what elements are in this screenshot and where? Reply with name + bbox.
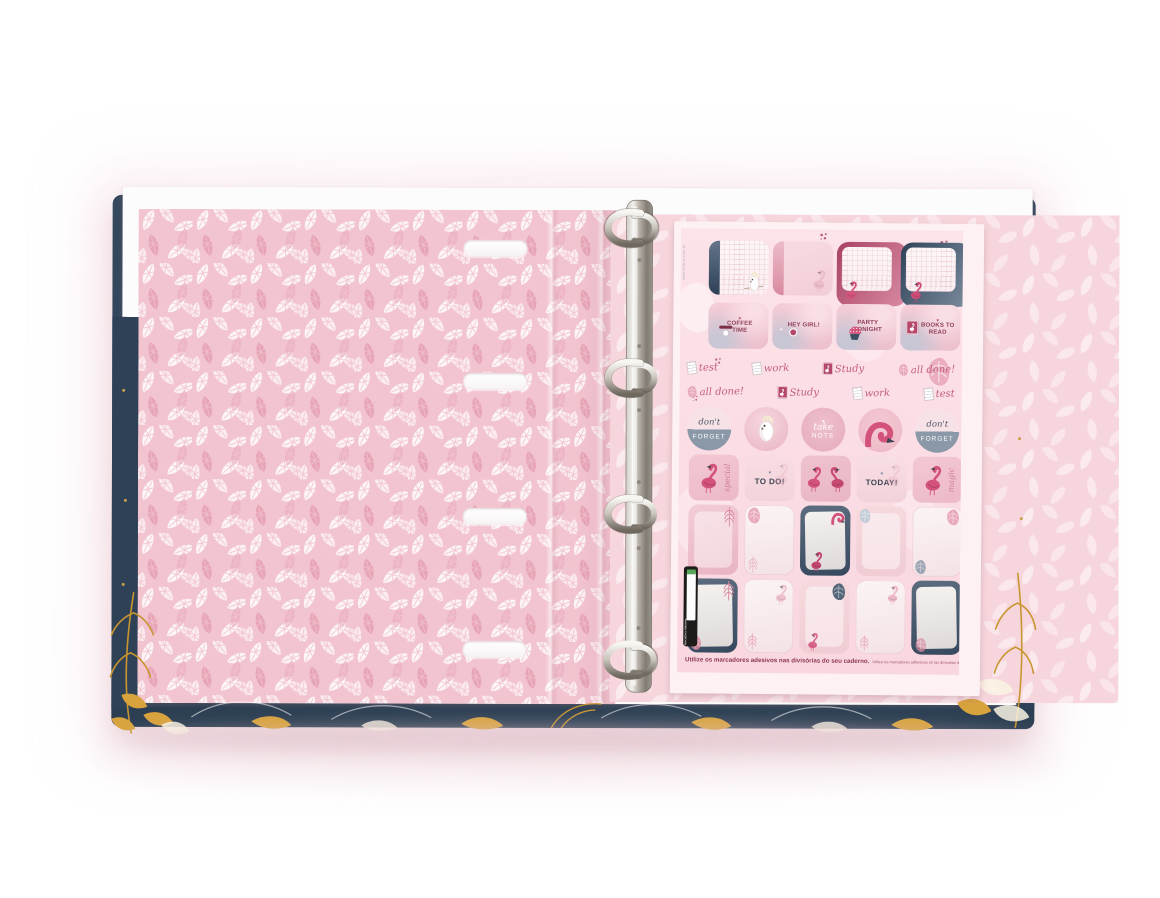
sticker-round-cockatoo — [744, 407, 788, 451]
book-flamingo-icon — [777, 386, 787, 398]
fern-leaf-decor — [747, 556, 759, 573]
elastic-slot-1 — [464, 240, 528, 257]
sticker-card-rose-frame — [836, 242, 907, 307]
sticker-square-today: ♥ TODAY! — [857, 456, 907, 502]
sticker-badge-books-to-read: ♥BOOKS TO READ — [900, 304, 960, 351]
product-photo: www.tilibra.com.br — [0, 0, 1160, 898]
script-word: work — [763, 362, 789, 374]
sticker-badge-hey-girl: HEY GIRL! — [772, 303, 832, 350]
gold-dot — [122, 389, 125, 392]
flamingo-icon — [808, 550, 826, 572]
badge-label: BOOKS TO READ — [921, 323, 955, 338]
gold-dot — [124, 499, 127, 502]
flamingo-head-icon — [863, 413, 897, 447]
sticker-card-pink-bar — [773, 241, 834, 296]
sticker-card-navy-bar — [709, 241, 770, 296]
script-word: work — [864, 387, 890, 399]
spine-crease-1 — [545, 210, 559, 704]
notepad-icon — [751, 361, 763, 375]
binder-soft-reflection — [95, 736, 1065, 780]
notepad-icon — [852, 386, 864, 400]
side-label-line1: Marcadores Adesivos — [684, 619, 687, 646]
monstera-leaf-decor — [914, 638, 927, 653]
flamingo-icon — [883, 462, 905, 490]
forget-caps: FORGET — [921, 435, 954, 442]
sticker-card-navy-frame — [900, 242, 963, 307]
sticker-round-take-note: ♥ take NOTE — [801, 407, 845, 451]
card-navy-bar — [709, 241, 721, 295]
sticker-square-special: special — [689, 454, 739, 500]
sticker-round-dont-forget: don't FORGET — [915, 409, 959, 453]
sheet-footer: Utilize os marcadores adesivos nas divis… — [685, 656, 956, 666]
dont-script: don't — [698, 417, 720, 427]
script-word: test — [699, 362, 718, 373]
tag-sticker — [912, 506, 963, 576]
gold-dot — [1020, 517, 1023, 520]
sticker-round-dont-forget: don't FORGET — [687, 406, 731, 450]
flamingo-icon — [908, 280, 926, 302]
sticker-square-magic: magic — [913, 456, 963, 502]
elastic-slot-3 — [463, 508, 527, 525]
flamingo-icon — [920, 464, 946, 496]
sticker-sheet-background: www.tilibra.com.br — [677, 228, 963, 675]
tag-sticker — [743, 579, 794, 653]
fern-leaf-decor — [746, 633, 758, 650]
flamingo-head-icon — [830, 509, 846, 525]
monstera-leaf-decor — [858, 508, 871, 524]
fern-leaf-decor — [858, 635, 870, 651]
magic-script: magic — [946, 468, 955, 493]
fern-leaf-decor — [722, 581, 736, 601]
footer-instruction-es: Utiliza los marcadores adhesivos en las … — [872, 660, 963, 665]
footer-instruction-pt: Utilize os marcadores adesivos nas divis… — [685, 656, 869, 665]
notepad-icon — [923, 387, 935, 401]
tag-sticker — [688, 504, 739, 574]
tag-sticker — [855, 580, 906, 654]
script-word: all done! — [910, 364, 955, 376]
tag-sticker — [799, 579, 850, 653]
product-side-label: Marcadores Adesivos — [683, 566, 698, 646]
monstera-leaf-decor — [746, 507, 761, 524]
take-script: take — [813, 424, 833, 433]
notepad-icon — [686, 360, 698, 374]
fern-leaf-decor — [722, 507, 736, 527]
open-ring-binder: www.tilibra.com.br — [111, 185, 1035, 731]
monstera-leaf-decor — [914, 560, 927, 575]
tag-sticker — [744, 505, 795, 575]
side-label-text: Marcadores Adesivos — [684, 616, 696, 645]
book-flamingo-icon — [906, 320, 918, 334]
gold-dot — [1018, 437, 1021, 440]
special-script: special — [722, 463, 731, 491]
script-word: test — [935, 388, 954, 399]
flamingo-icon — [843, 280, 861, 302]
flamingo-icon — [810, 268, 830, 292]
sticker-square-two-flamingos — [801, 455, 851, 501]
script-word-row-2: all done! Study work test — [687, 380, 955, 405]
barcode-strip — [686, 569, 695, 620]
tag-sticker — [911, 580, 962, 654]
elastic-slot-4 — [462, 641, 526, 658]
monstera-leaf-icon — [687, 385, 698, 398]
sticker-square-to-do: ♥ TO DO! — [745, 455, 795, 501]
monstera-leaf-decor — [831, 583, 847, 601]
sticker-round-flamingo — [858, 408, 902, 452]
tag-sticker — [856, 506, 907, 576]
script-word: Study — [789, 387, 819, 399]
flamingo-icon — [885, 584, 902, 605]
card-pink-bar — [773, 241, 785, 295]
cockatoo-icon — [751, 414, 781, 444]
website-vertical-text: www.tilibra.com.br — [682, 244, 686, 280]
script-word-row-1: test work Study all done! — [687, 356, 955, 381]
gold-dot — [122, 583, 125, 586]
flamingo-icon — [696, 461, 722, 493]
script-word: all done! — [700, 386, 745, 398]
monstera-leaf-icon — [897, 363, 908, 376]
sticker-sheet: www.tilibra.com.br — [670, 221, 985, 696]
flamingo-icon — [805, 631, 821, 651]
flamingo-icon — [826, 465, 848, 493]
flamingo-icon — [771, 461, 793, 489]
ring-mechanism — [581, 198, 668, 698]
cockatoo-icon — [743, 271, 765, 293]
flamingo-icon — [804, 464, 826, 492]
dont-script: don't — [926, 419, 948, 429]
sticker-badge-coffee-time: ♥COFFEE TIME — [708, 303, 768, 350]
script-word: Study — [834, 363, 864, 375]
flower-dots-decor — [819, 232, 829, 242]
book-flamingo-icon — [822, 363, 832, 375]
sticker-badge-party-tonight: PARTY TONIGHT — [836, 304, 896, 351]
note-caps: NOTE — [812, 433, 835, 440]
flamingo-icon — [773, 583, 791, 605]
forget-caps: FORGET — [693, 433, 726, 440]
elastic-slot-2 — [463, 373, 527, 390]
monstera-leaf-decor — [945, 509, 960, 526]
tag-sticker — [800, 505, 851, 575]
